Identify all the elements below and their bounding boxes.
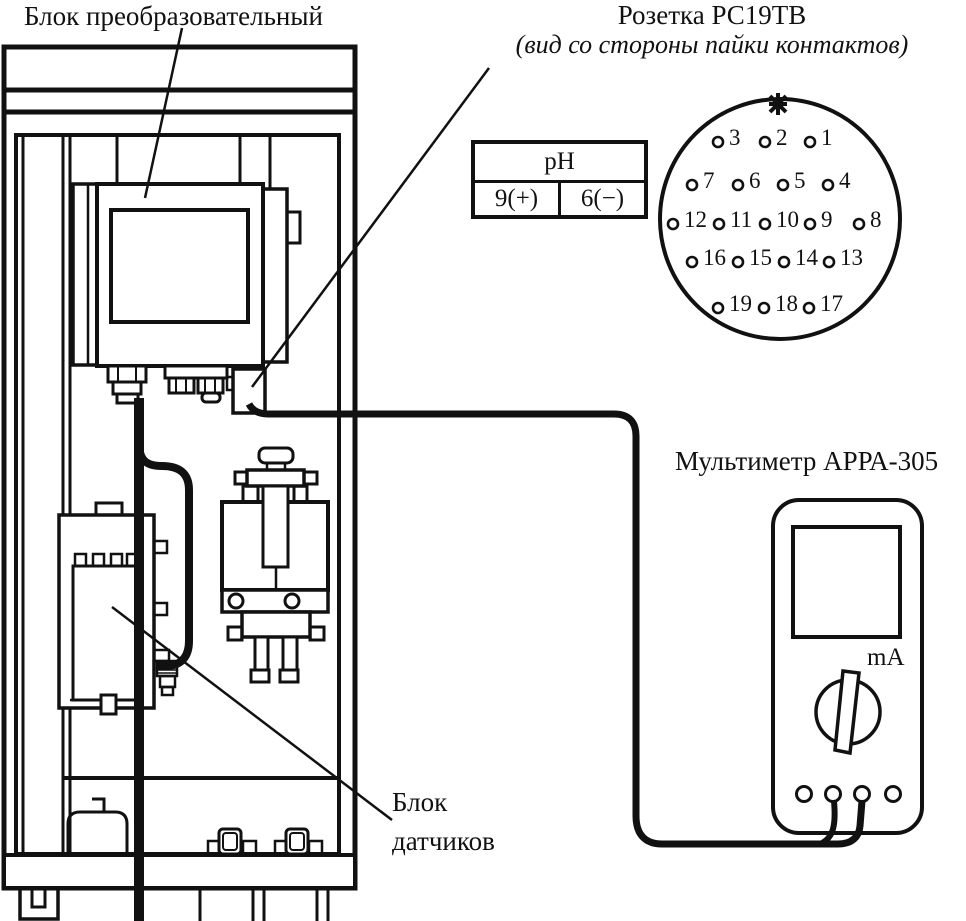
pin-number-13: 13 <box>840 245 863 270</box>
multimeter-display <box>793 527 900 637</box>
pin-hole-4 <box>823 180 833 190</box>
pin-number-1: 1 <box>821 125 833 150</box>
bottom-pipe-stubs <box>200 888 328 921</box>
pin-number-11: 11 <box>730 207 752 232</box>
terminal-1 <box>797 787 812 802</box>
socket-title: Розетка РС19ТВ <box>556 0 868 31</box>
pin-number-16: 16 <box>703 245 726 270</box>
socket-subtitle: (вид со стороны пайки контактов) <box>462 30 962 60</box>
sensor-block-label-line2: датчиков <box>392 822 495 861</box>
pin-hole-3 <box>713 137 723 147</box>
pin-hole-19 <box>713 303 723 313</box>
multimeter-label: Мультиметр АРРА-305 <box>675 446 938 477</box>
pin-hole-11 <box>714 219 724 229</box>
socket-key-mark <box>769 93 787 115</box>
pin-hole-5 <box>778 180 788 190</box>
terminal-4 <box>886 787 901 802</box>
pin-number-3: 3 <box>729 125 741 150</box>
sensor-block-label-line1: Блок <box>392 783 495 822</box>
converter-side-panel <box>263 189 287 362</box>
cabinet-base-band <box>4 855 355 888</box>
multimeter-mode-label: mA <box>867 644 905 672</box>
pin-hole-10 <box>760 219 770 229</box>
pin-number-2: 2 <box>776 125 788 150</box>
pin-hole-12 <box>668 219 678 229</box>
ph-negative-pin: 6(−) <box>561 183 644 215</box>
pin-number-7: 7 <box>703 168 715 193</box>
pin-hole-1 <box>805 137 815 147</box>
wiring-diagram-page: 12345678910111213141516171819 Блок преоб… <box>0 0 966 921</box>
pin-number-9: 9 <box>821 207 833 232</box>
pin-hole-6 <box>733 180 743 190</box>
pin-hole-15 <box>733 257 743 267</box>
converter-screen <box>111 210 248 322</box>
pin-hole-14 <box>779 257 789 267</box>
pin-hole-2 <box>760 137 770 147</box>
terminal-3 <box>855 787 870 802</box>
pin-hole-8 <box>854 219 864 229</box>
pin-hole-18 <box>759 303 769 313</box>
terminal-2 <box>826 787 841 802</box>
sensor-block-label: Блок датчиков <box>392 783 495 861</box>
pin-number-5: 5 <box>794 168 806 193</box>
pin-number-19: 19 <box>729 291 752 316</box>
pin-hole-13 <box>824 257 834 267</box>
pin-hole-17 <box>804 303 814 313</box>
pin-number-12: 12 <box>684 207 707 232</box>
pin-number-6: 6 <box>749 168 761 193</box>
ph-table-header: pH <box>475 144 644 183</box>
ph-connection-table: pH 9(+) 6(−) <box>471 140 648 219</box>
valve-plunger <box>263 486 288 567</box>
pin-number-14: 14 <box>795 245 819 270</box>
pin-number-18: 18 <box>775 291 798 316</box>
pin-hole-16 <box>687 257 697 267</box>
pin-number-4: 4 <box>839 168 851 193</box>
pin-number-8: 8 <box>870 207 882 232</box>
ph-positive-pin: 9(+) <box>475 183 561 215</box>
pin-number-17: 17 <box>820 291 843 316</box>
pin-number-10: 10 <box>776 207 799 232</box>
converter-bracket <box>73 184 97 365</box>
pin-hole-9 <box>805 219 815 229</box>
pin-number-15: 15 <box>749 245 772 270</box>
converter-block-label: Блок преобразовательный <box>24 1 323 32</box>
converter-block-drawing <box>73 184 300 413</box>
socket-connector-drawing: 12345678910111213141516171819 <box>660 93 900 339</box>
pin-hole-7 <box>687 180 697 190</box>
cabinet-foot <box>20 888 58 919</box>
